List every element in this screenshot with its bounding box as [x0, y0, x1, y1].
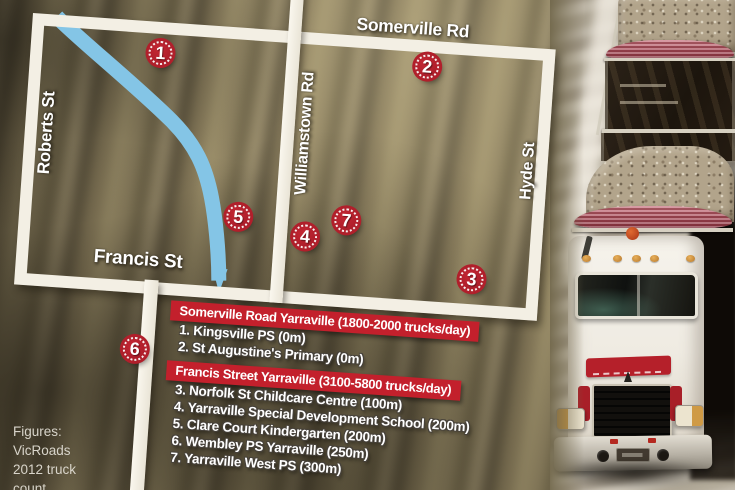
tarp-roll-front [574, 206, 732, 230]
roof-marker-light [650, 255, 659, 262]
truck-photo [550, 0, 735, 490]
empty-trailer-box [605, 61, 735, 131]
source-caption: Figures: VicRoads 2012 truck count [13, 422, 76, 490]
map-overlay: Somerville Rd Roberts St Williamstown Rd… [0, 13, 556, 490]
roof-marker-light [686, 255, 695, 262]
roof-marker-light [613, 255, 622, 262]
trailer-brace [620, 101, 678, 104]
road-south-segment [130, 279, 159, 490]
trailer-edge [572, 228, 733, 232]
red-reflector [610, 439, 618, 444]
headlight-right [675, 405, 704, 427]
roof-marker-light [632, 255, 641, 262]
exhaust-stack-light [626, 227, 639, 240]
legend: Somerville Road Yarraville (1800-2000 tr… [160, 300, 543, 490]
red-reflector [648, 438, 656, 443]
trailer-brace [620, 84, 666, 87]
truck-route-infographic: Somerville Rd Roberts St Williamstown Rd… [0, 0, 735, 490]
windshield [575, 272, 698, 319]
photo-blend-edge [550, 0, 584, 490]
truck-grille [592, 384, 672, 438]
